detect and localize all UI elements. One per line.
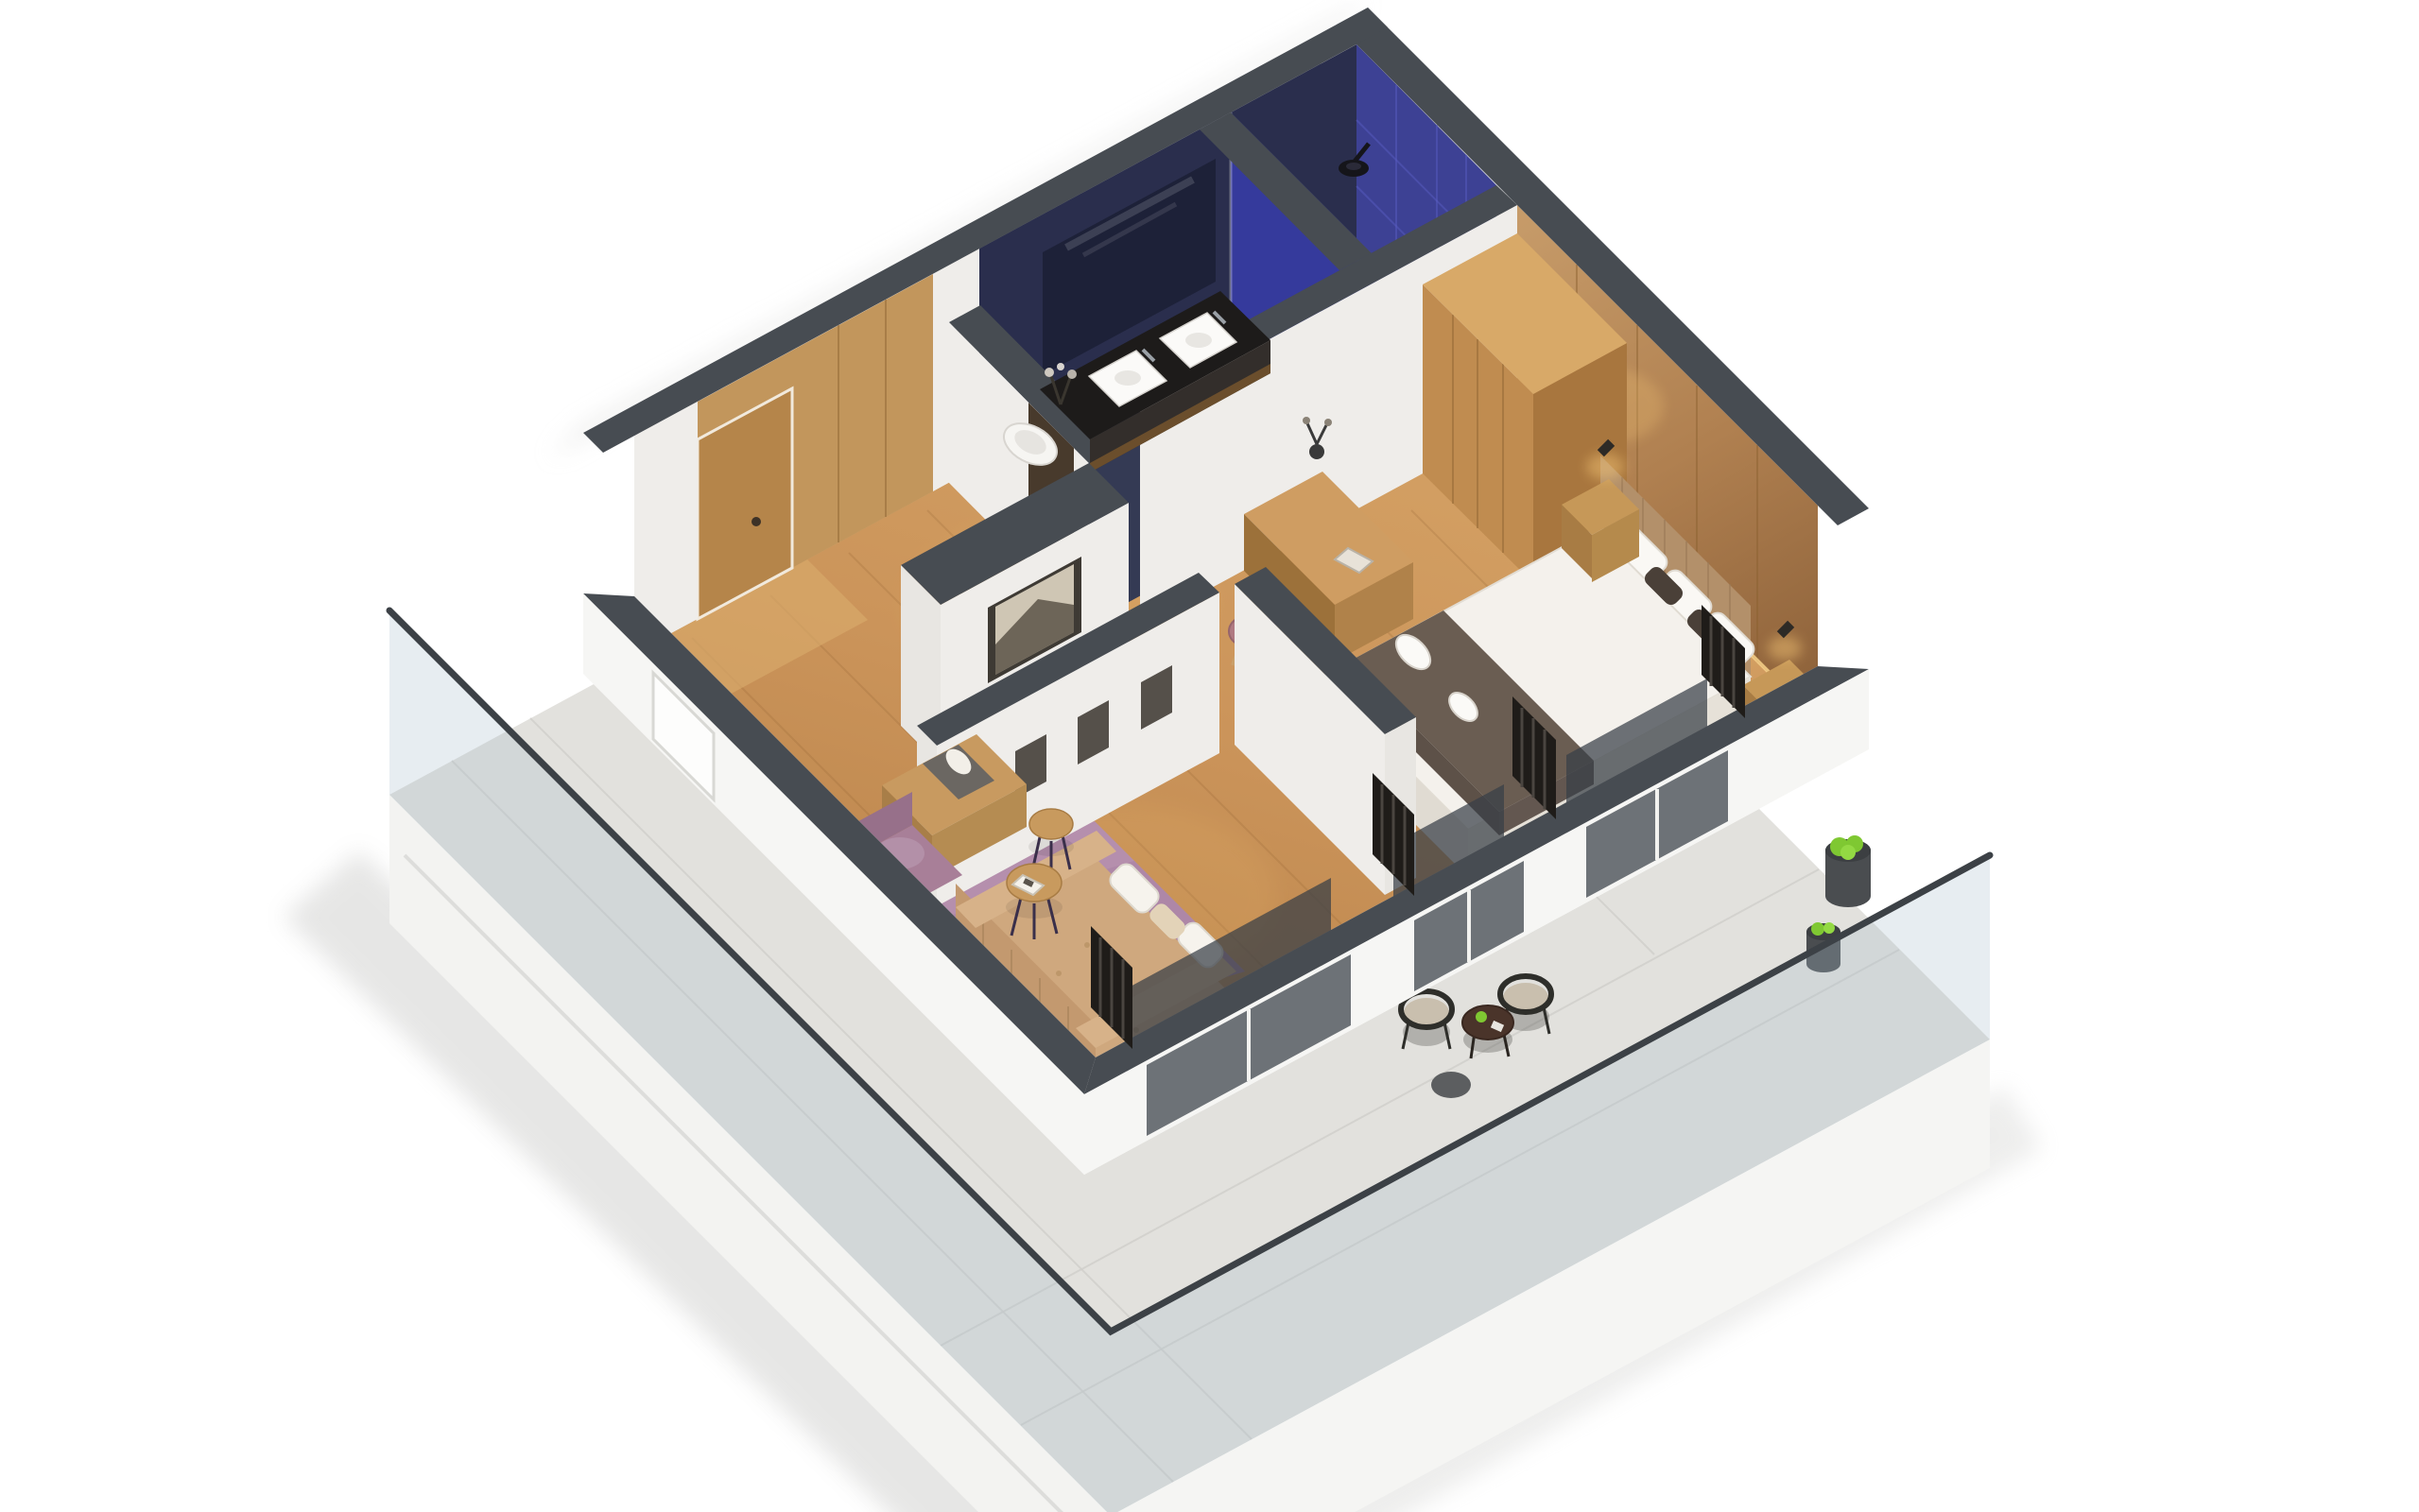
outdoor-pouf — [1431, 1072, 1471, 1098]
coffee-table-top — [1029, 809, 1073, 839]
floor-plan-render — [0, 0, 2419, 1512]
outdoor-table-top — [1462, 1005, 1513, 1039]
sink-bowl-1 — [1185, 333, 1212, 348]
outdoor-chair-left — [1401, 991, 1452, 1049]
door-handle — [752, 517, 761, 526]
planter-tall — [1825, 835, 1871, 907]
coffee-table-large — [1006, 864, 1063, 939]
sink-bowl-2 — [1114, 370, 1141, 386]
table-plant — [1476, 1011, 1487, 1022]
